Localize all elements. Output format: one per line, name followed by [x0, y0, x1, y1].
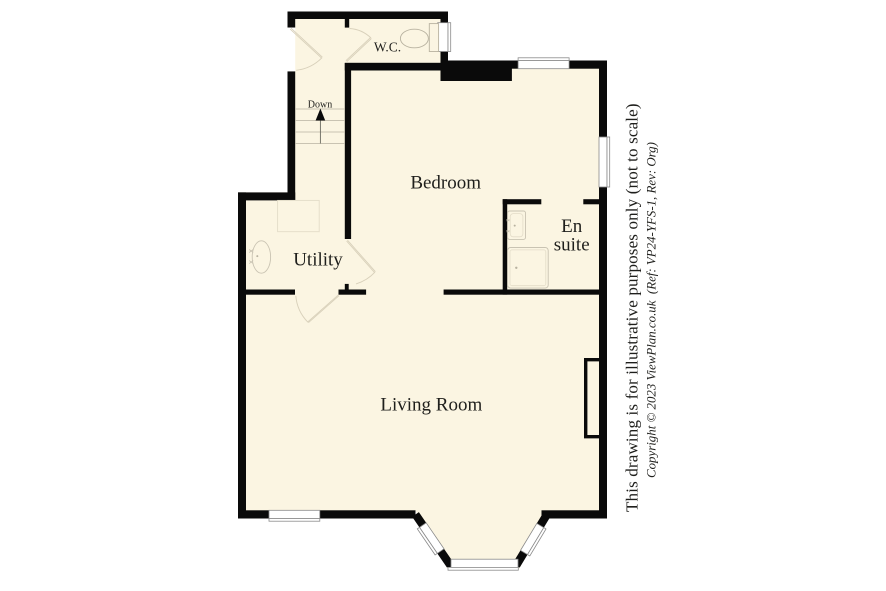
svg-text:W.C.: W.C.	[374, 39, 401, 54]
svg-text:suite: suite	[554, 235, 590, 256]
svg-text:Down: Down	[308, 100, 332, 111]
svg-text:Copyright © 2023 ViewPlan.co.u: Copyright © 2023 ViewPlan.co.uk (Ref: VP…	[645, 142, 659, 478]
svg-text:Utility: Utility	[293, 250, 343, 271]
svg-text:This drawing is for illustrati: This drawing is for illustrative purpose…	[623, 103, 642, 512]
svg-text:Bedroom: Bedroom	[410, 173, 481, 194]
svg-text:Living Room: Living Room	[380, 395, 482, 416]
